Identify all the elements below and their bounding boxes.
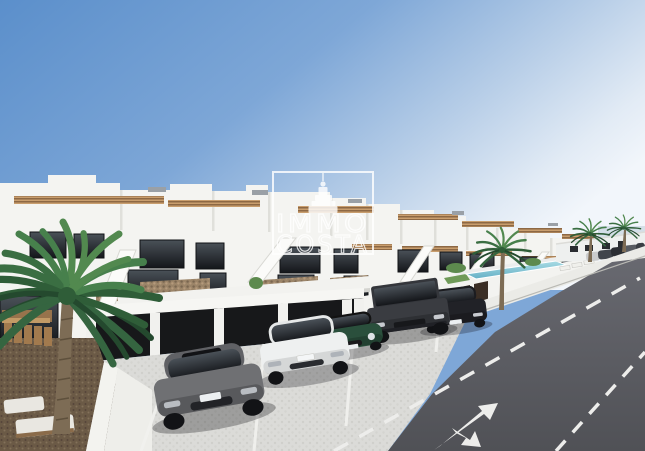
- watermark-line2: COSTA: [276, 230, 370, 259]
- scene-svg: IMMO COSTA: [0, 0, 645, 451]
- property-render: IMMO COSTA: [0, 0, 645, 451]
